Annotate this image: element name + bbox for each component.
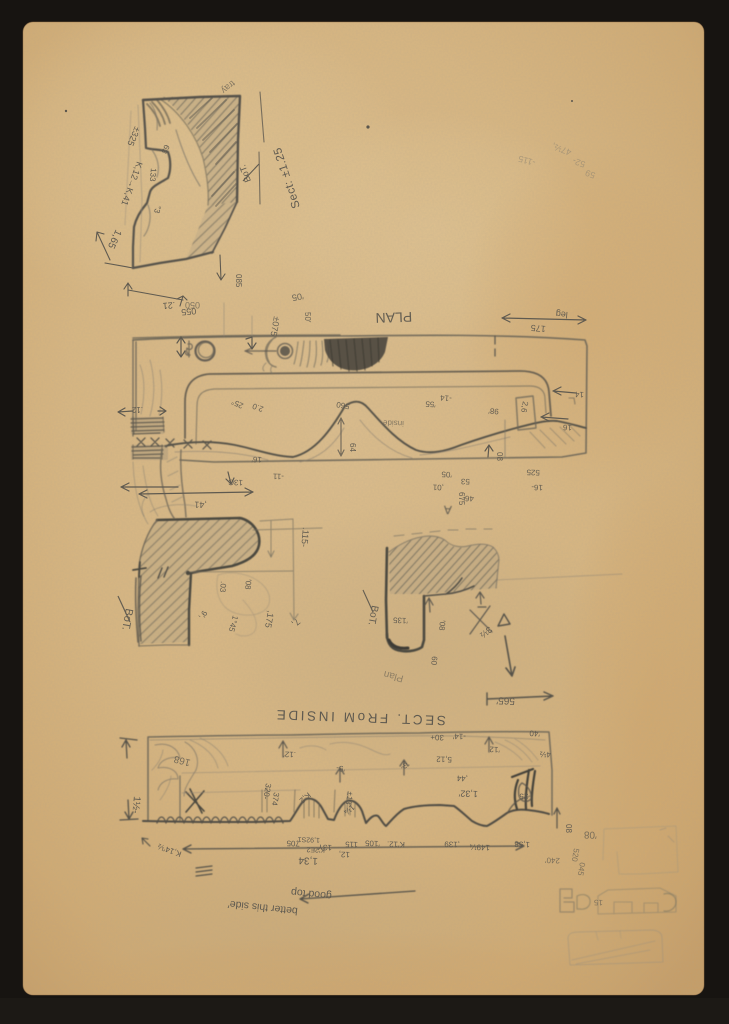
svg-text:085: 085 xyxy=(234,274,243,288)
svg-text:leg: leg xyxy=(555,309,568,320)
svg-text:149¼: 149¼ xyxy=(469,842,490,852)
svg-text:16: 16 xyxy=(562,423,572,432)
svg-text:5,12: 5,12 xyxy=(436,754,452,764)
svg-text:-25: -25 xyxy=(519,792,531,801)
svg-text:′08: ′08 xyxy=(243,579,253,591)
svg-text:1,34: 1,34 xyxy=(298,854,318,866)
svg-text:K′12.: K′12. xyxy=(387,839,405,849)
svg-text:98′: 98′ xyxy=(488,406,500,416)
svg-text:′08: ′08 xyxy=(583,829,597,840)
svg-text:′08: ′08 xyxy=(437,620,447,632)
svg-text:-3′: -3′ xyxy=(401,761,410,770)
svg-text:PLAN: PLAN xyxy=(375,309,412,326)
svg-text:-11: -11 xyxy=(272,472,284,481)
svg-text:.21: .21 xyxy=(162,300,175,311)
svg-text:,41: ,41 xyxy=(194,500,207,510)
svg-text:′40: ′40 xyxy=(529,729,540,738)
svg-text:,01: ,01 xyxy=(432,483,444,492)
svg-text:1,32′: 1,32′ xyxy=(458,788,478,799)
svg-text:A: A xyxy=(444,503,452,517)
svg-text:′05: ′05 xyxy=(291,291,304,303)
svg-text:′12: ′12 xyxy=(489,745,500,754)
svg-text:,139: ,139 xyxy=(444,839,460,849)
svg-text:16-: 16- xyxy=(531,483,543,492)
svg-text:13Y: 13Y xyxy=(317,842,332,852)
svg-text:53: 53 xyxy=(460,477,470,486)
svg-text:675: 675 xyxy=(457,492,466,506)
svg-text:050: 050 xyxy=(185,300,200,310)
svg-text:50′: 50′ xyxy=(303,312,312,323)
svg-text:64: 64 xyxy=(348,443,357,452)
svg-text:.12: .12 xyxy=(131,405,143,414)
svg-text:′135: ′135 xyxy=(392,615,408,625)
svg-text:4½: 4½ xyxy=(539,750,551,759)
svg-text:′05: ′05 xyxy=(441,470,452,479)
svg-text:565′: 565′ xyxy=(496,694,515,706)
svg-text:133: 133 xyxy=(148,168,158,183)
svg-text:705: 705 xyxy=(286,839,300,848)
svg-text:-14: -14 xyxy=(439,393,452,403)
svg-text:08: 08 xyxy=(495,452,504,461)
svg-text:-14′: -14′ xyxy=(452,732,466,741)
svg-text:60: 60 xyxy=(429,656,439,666)
svg-text:,44: ,44 xyxy=(456,774,468,783)
svg-text:1,58: 1,58 xyxy=(514,839,530,849)
svg-text:′5-: ′5- xyxy=(336,764,345,773)
svg-text:12,: 12, xyxy=(339,850,350,859)
svg-text:115: 115 xyxy=(344,840,358,849)
svg-text:.12′: .12′ xyxy=(283,750,296,759)
svg-text:.03: .03 xyxy=(218,581,228,593)
svg-text:08: 08 xyxy=(564,824,573,833)
svg-text:525: 525 xyxy=(526,468,540,477)
svg-text:inside: inside xyxy=(382,418,404,428)
svg-text:.115-: .115- xyxy=(299,527,311,548)
svg-text:14: 14 xyxy=(574,390,584,399)
svg-text:13C: 13C xyxy=(228,477,243,487)
svg-text:175: 175 xyxy=(530,323,546,334)
svg-text:16′: 16′ xyxy=(251,455,262,464)
svg-text:30+: 30+ xyxy=(430,733,444,742)
svg-text:′55: ′55 xyxy=(424,399,436,409)
svg-text:240′: 240′ xyxy=(544,855,560,865)
svg-text:′105: ′105 xyxy=(364,838,380,848)
svg-text:1½-: 1½- xyxy=(130,796,142,814)
